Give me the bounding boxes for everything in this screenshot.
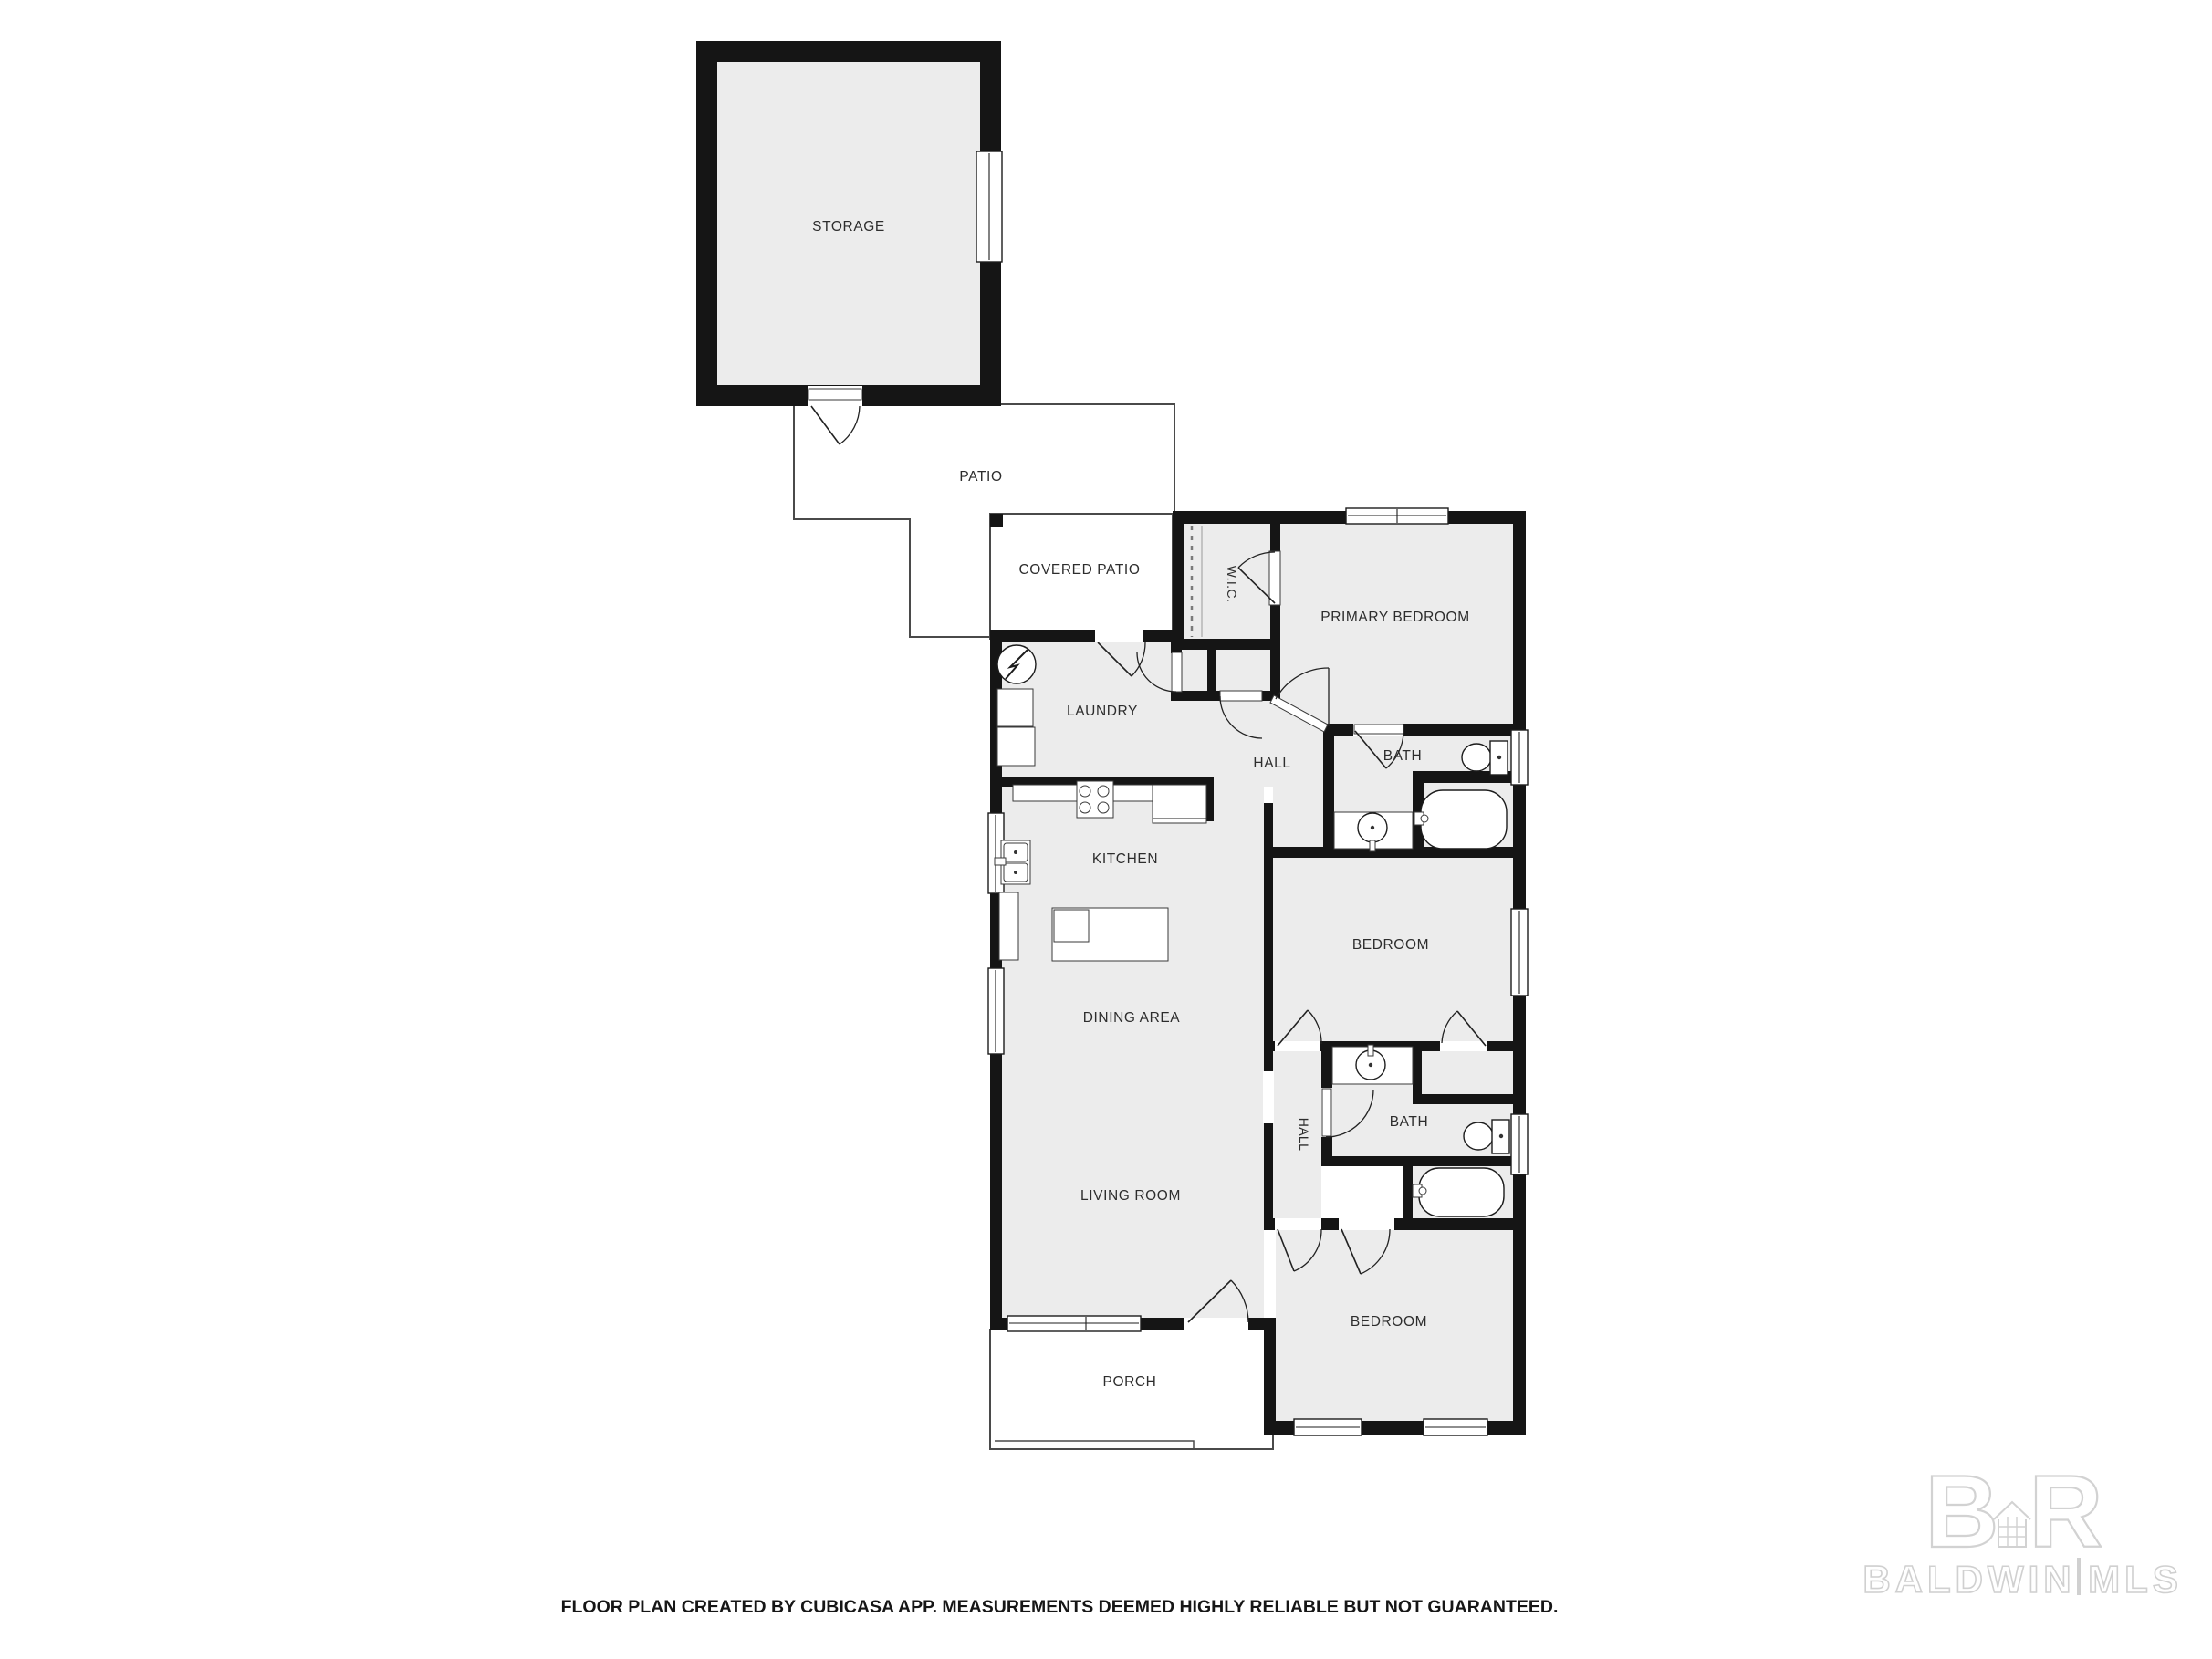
middle-bedroom-label: BEDROOM	[1352, 937, 1429, 953]
logo-initial-b: B	[1925, 1455, 1999, 1569]
kitchen-island	[1052, 908, 1168, 961]
second-bath-label: BATH	[1390, 1114, 1429, 1130]
window	[976, 151, 1002, 262]
hall-lower-label: HALL	[1297, 1118, 1311, 1152]
primary-bath-label: BATH	[1383, 748, 1423, 764]
kitchen-west-counter	[999, 892, 1018, 960]
logo-initial-r: R	[2029, 1455, 2103, 1569]
window	[1511, 909, 1528, 996]
window	[1424, 1419, 1487, 1435]
primary-bedroom-label: PRIMARY BEDROOM	[1320, 610, 1469, 625]
patio-post	[990, 514, 1003, 527]
disclaimer-text: FLOOR PLAN CREATED BY CUBICASA APP. MEAS…	[561, 1597, 1559, 1617]
floorplan-drawing: STORAGE PATIO COVERED PATIO W.I.C. PRIMA…	[0, 0, 2212, 1659]
stove-icon	[1077, 781, 1113, 818]
dining-area-label: DINING AREA	[1083, 1010, 1181, 1026]
washer-icon	[997, 689, 1033, 726]
bath-sink-icon	[1332, 1045, 1413, 1084]
house-icon	[1994, 1502, 2030, 1547]
wic-label: W.I.C.	[1225, 566, 1239, 603]
covered-patio-label: COVERED PATIO	[1019, 562, 1141, 578]
dryer-icon	[997, 727, 1035, 766]
porch-label: PORCH	[1103, 1374, 1157, 1390]
window	[988, 968, 1004, 1054]
bath-sink-icon	[1334, 812, 1413, 851]
storage-label: STORAGE	[812, 219, 885, 235]
room-floors	[1002, 524, 1513, 1421]
hall-pocket-floor	[1273, 777, 1328, 858]
floorplan-page: STORAGE PATIO COVERED PATIO W.I.C. PRIMA…	[0, 0, 2212, 1659]
closet2-floor	[1332, 1166, 1403, 1218]
window	[1511, 1114, 1528, 1174]
bathtub-icon	[1414, 790, 1507, 849]
bathtub-icon	[1413, 1168, 1504, 1216]
baldwin-mls-logo: B R BALDWIN MLS	[1862, 1455, 2182, 1601]
patio-label: PATIO	[959, 469, 1002, 485]
hall-upper-label: HALL	[1253, 756, 1290, 771]
closet-a-floor	[1182, 650, 1207, 691]
window	[1007, 1316, 1141, 1331]
laundry-label: LAUNDRY	[1067, 704, 1138, 719]
hall-upper-floor	[1171, 696, 1328, 787]
water-heater-icon	[997, 645, 1036, 683]
vestibule-floor	[1216, 650, 1270, 696]
logo-suffix: MLS	[2088, 1558, 2183, 1601]
kitchen-label: KITCHEN	[1092, 851, 1158, 867]
storage-building	[696, 41, 1002, 444]
logo-name: BALDWIN	[1862, 1558, 2075, 1601]
window	[1294, 1419, 1362, 1435]
hall-kitchen-opening-floor	[1214, 777, 1264, 790]
rear-bedroom-label: BEDROOM	[1351, 1314, 1427, 1330]
window	[1511, 730, 1528, 785]
window	[1346, 508, 1448, 524]
living-room-label: LIVING ROOM	[1080, 1188, 1181, 1204]
